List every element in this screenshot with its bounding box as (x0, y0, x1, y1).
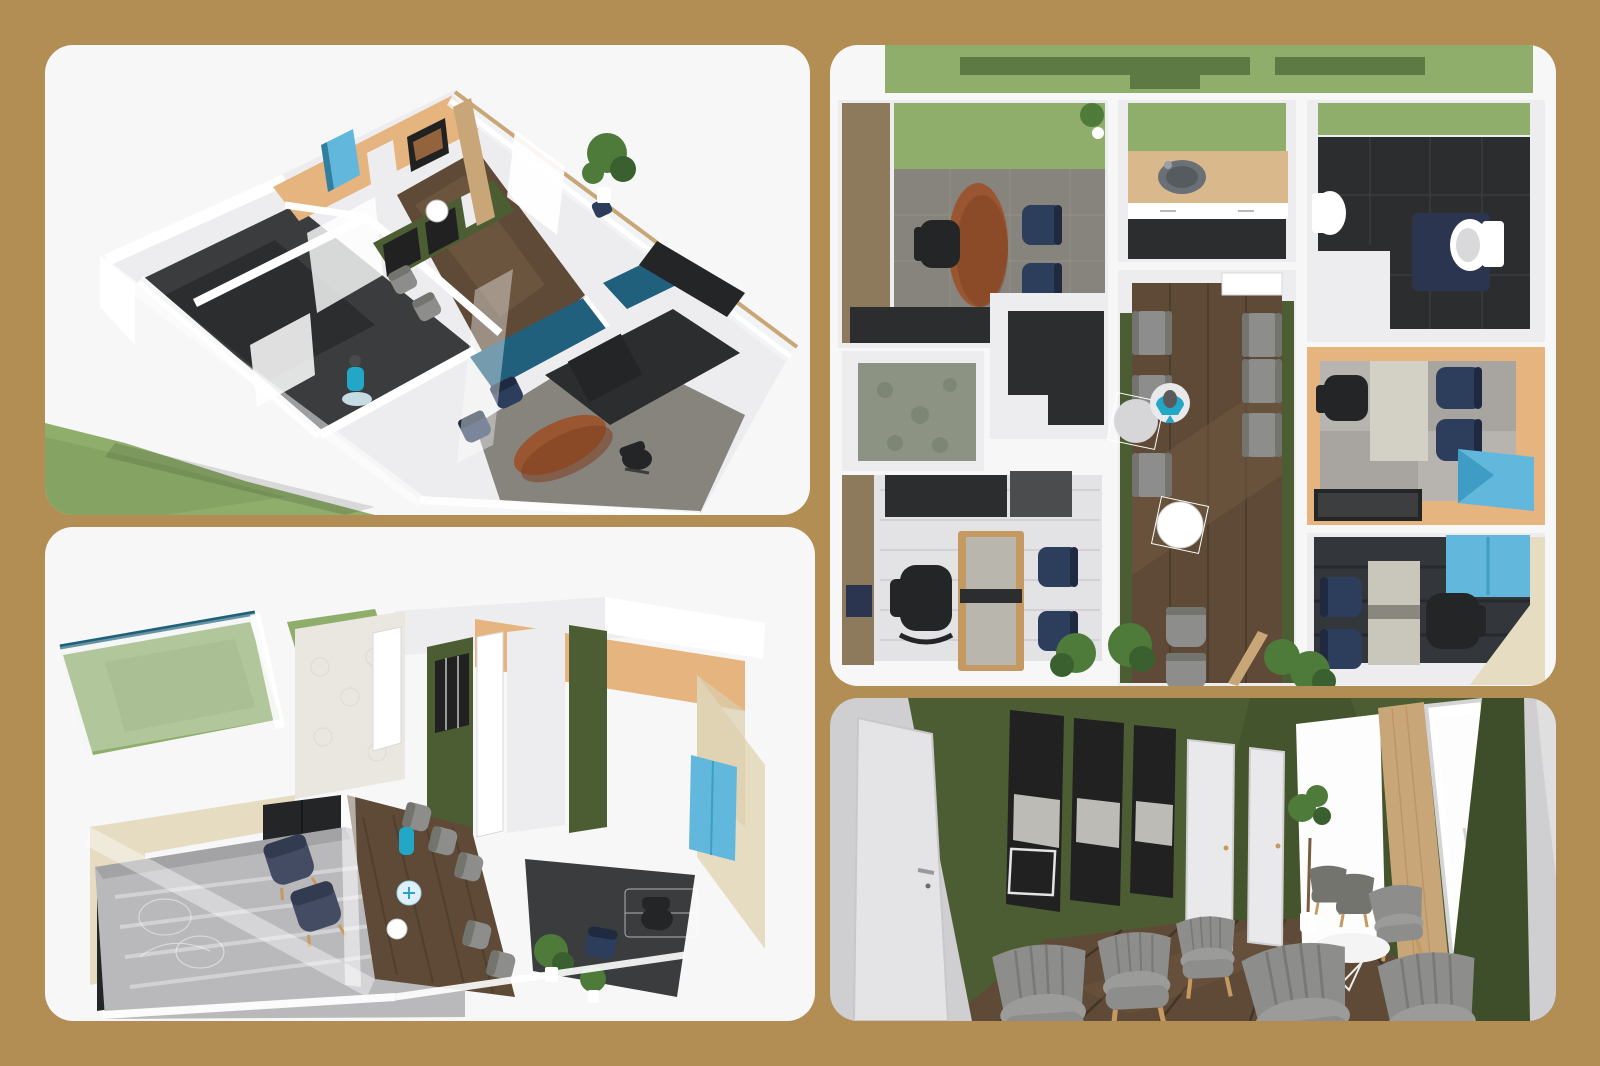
toilet (1312, 191, 1346, 235)
person-figure (1150, 383, 1190, 423)
office-chair (914, 220, 960, 268)
cabinet (885, 475, 1007, 517)
navy-chair (1436, 367, 1482, 409)
door (477, 632, 503, 837)
top-down-floor-plan (830, 45, 1556, 686)
room-scene (830, 698, 1556, 1021)
blue-cabinet (1446, 535, 1530, 597)
artwork (435, 653, 469, 733)
green-wall (1282, 301, 1294, 683)
meeting-corridor (1108, 270, 1300, 686)
armchair (1242, 313, 1282, 357)
wall-art (846, 585, 872, 617)
kitchen-counter (1128, 151, 1288, 203)
isometric-floor-plan-view-b (45, 527, 815, 1021)
plan-scene (830, 45, 1556, 686)
doormat (1316, 491, 1420, 519)
render-collage: { "collage": { "panels": [ {"id": "panel… (0, 0, 1600, 1066)
office-2 (1307, 347, 1545, 525)
office-chair (1426, 593, 1486, 649)
navy-chair (1038, 547, 1078, 587)
iso-b-scene (45, 527, 815, 1021)
door (507, 625, 565, 833)
waiting-room-interior-view (830, 698, 1556, 1021)
navy-chair (1320, 577, 1362, 617)
round-table (426, 200, 448, 222)
door (1222, 273, 1282, 295)
armchair (1242, 359, 1282, 403)
sofa (850, 307, 990, 343)
door (854, 718, 948, 1021)
navy-chair (1022, 205, 1062, 245)
armchair (1242, 413, 1282, 457)
hedge (960, 57, 1250, 75)
storage-room (990, 293, 1108, 439)
round-table (1152, 497, 1209, 554)
desk (1370, 361, 1428, 461)
office-3 (1290, 533, 1545, 686)
building-slab (107, 90, 795, 515)
bathroom (1307, 100, 1545, 342)
wallpaper-wall (295, 611, 405, 799)
desk (958, 531, 1024, 671)
iso-a-scene (45, 45, 810, 515)
blue-cabinet (1458, 449, 1534, 511)
lamp (387, 919, 407, 939)
armchair (1166, 653, 1206, 686)
artwork-triptych (1006, 710, 1176, 912)
isometric-floor-plan-view-a (45, 45, 810, 515)
green-walls (427, 625, 607, 851)
armchair (1132, 453, 1172, 497)
armchair (1166, 607, 1206, 647)
garden (885, 45, 1533, 93)
toilet (1450, 219, 1504, 271)
patio-room (842, 351, 984, 471)
navy-armchair (584, 926, 619, 961)
armchair (992, 942, 1094, 1021)
kitchen (1118, 100, 1296, 262)
armchair (1132, 311, 1172, 355)
treatment-room (842, 471, 1102, 677)
door (373, 627, 401, 751)
cabinet-front (1128, 203, 1288, 219)
